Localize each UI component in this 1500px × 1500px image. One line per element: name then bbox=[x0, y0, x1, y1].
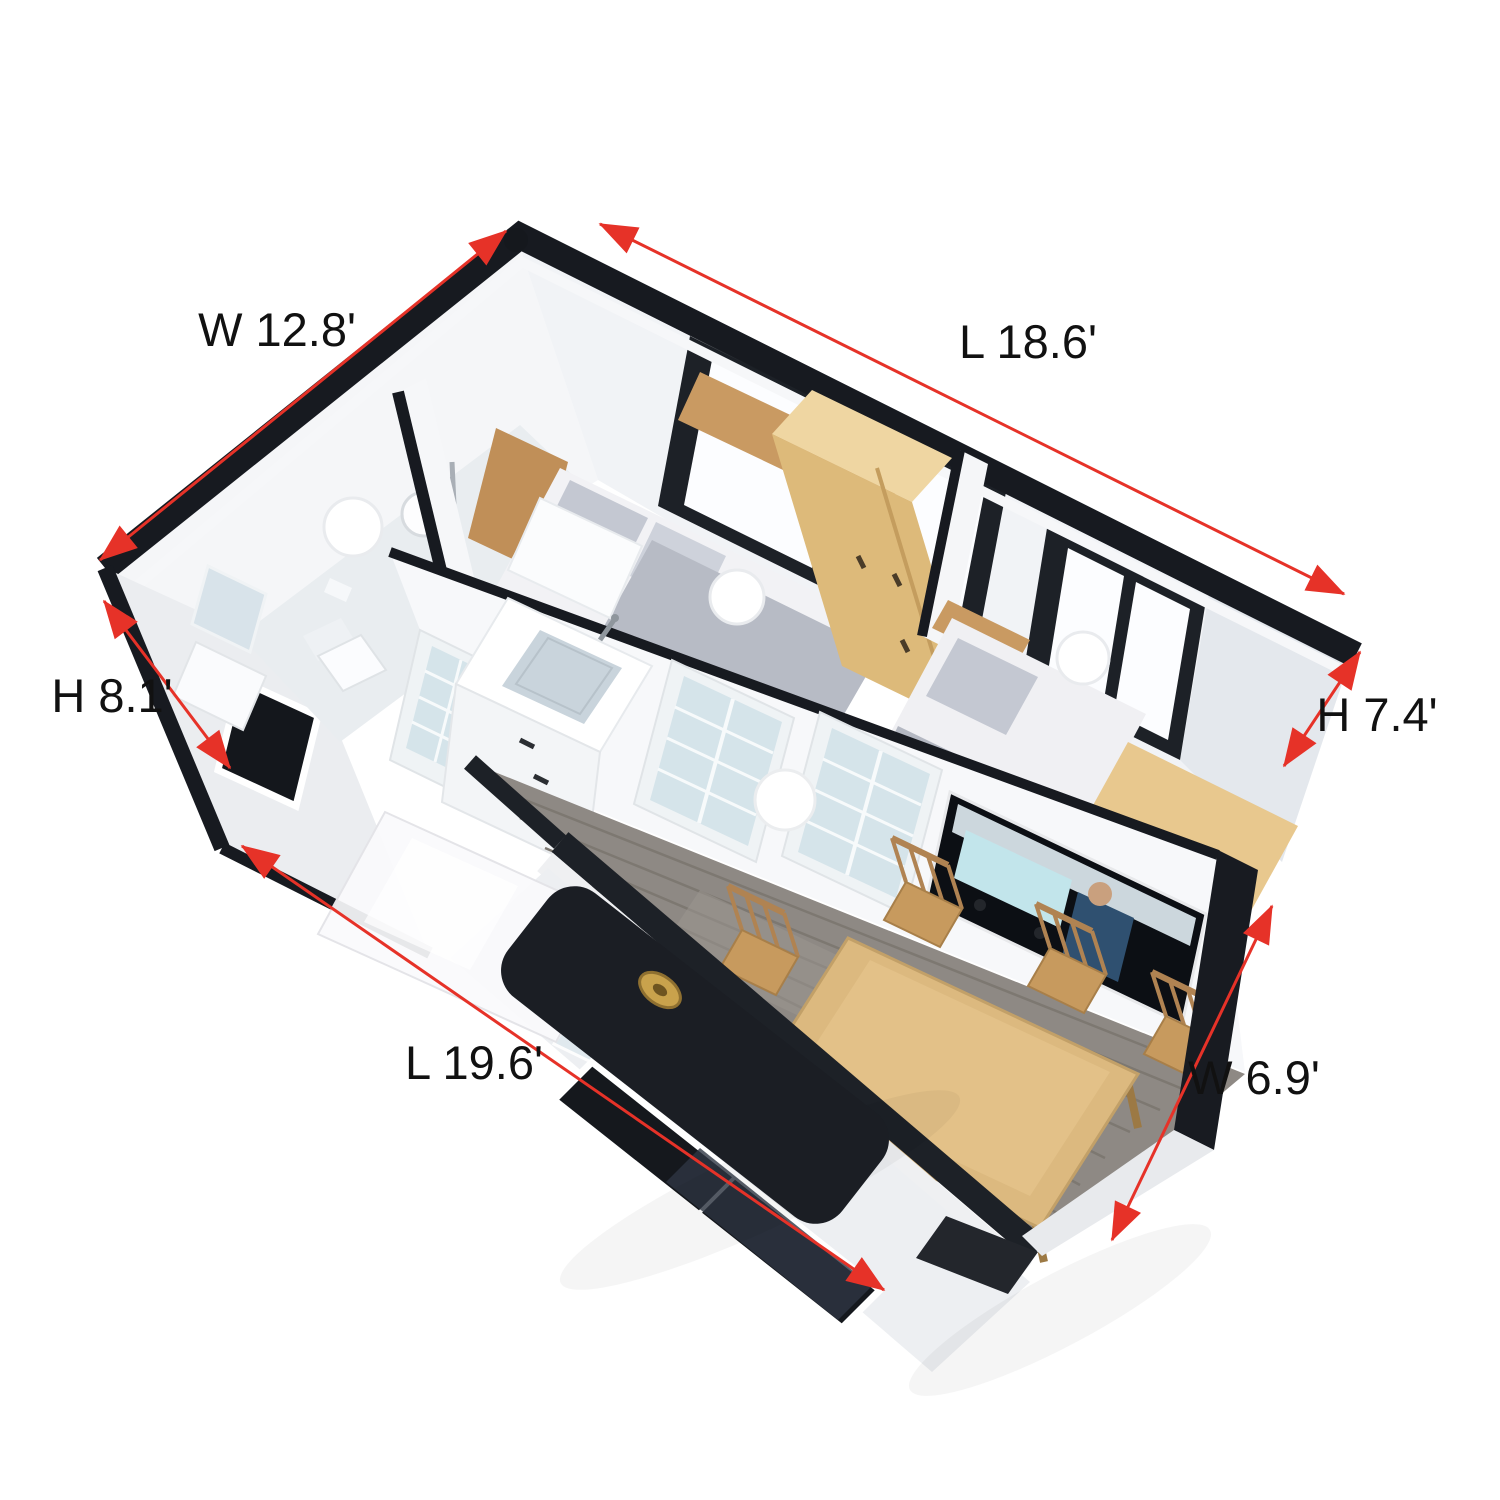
tv-scene-person-head bbox=[1088, 882, 1112, 906]
isometric-house-illustration: W 12.8' L 18.6' H 8.1' H 7.4' L 19.6' W … bbox=[0, 0, 1500, 1500]
dimension-label-front-height: H 7.4' bbox=[1316, 688, 1437, 741]
kitchen-faucet-head bbox=[611, 614, 619, 622]
dimension-label-total-width: W 12.8' bbox=[198, 303, 356, 356]
dimension-label-back-length: L 18.6' bbox=[959, 315, 1097, 368]
dimension-label-front-length: L 19.6' bbox=[405, 1036, 543, 1089]
container-home-dimension-diagram: W 12.8' L 18.6' H 8.1' H 7.4' L 19.6' W … bbox=[0, 0, 1500, 1500]
bedroom2-ceiling-light bbox=[1057, 632, 1109, 684]
living-pendant-light bbox=[755, 770, 815, 830]
dimension-label-front-width: W 6.9' bbox=[1188, 1051, 1320, 1104]
tv-scene-wheel bbox=[974, 899, 986, 911]
dimension-label-back-height: H 8.1' bbox=[51, 669, 172, 722]
bedroom1-ceiling-light bbox=[710, 570, 764, 624]
frame-corner-knob bbox=[504, 228, 528, 252]
bathroom-ceiling-light bbox=[324, 498, 382, 556]
